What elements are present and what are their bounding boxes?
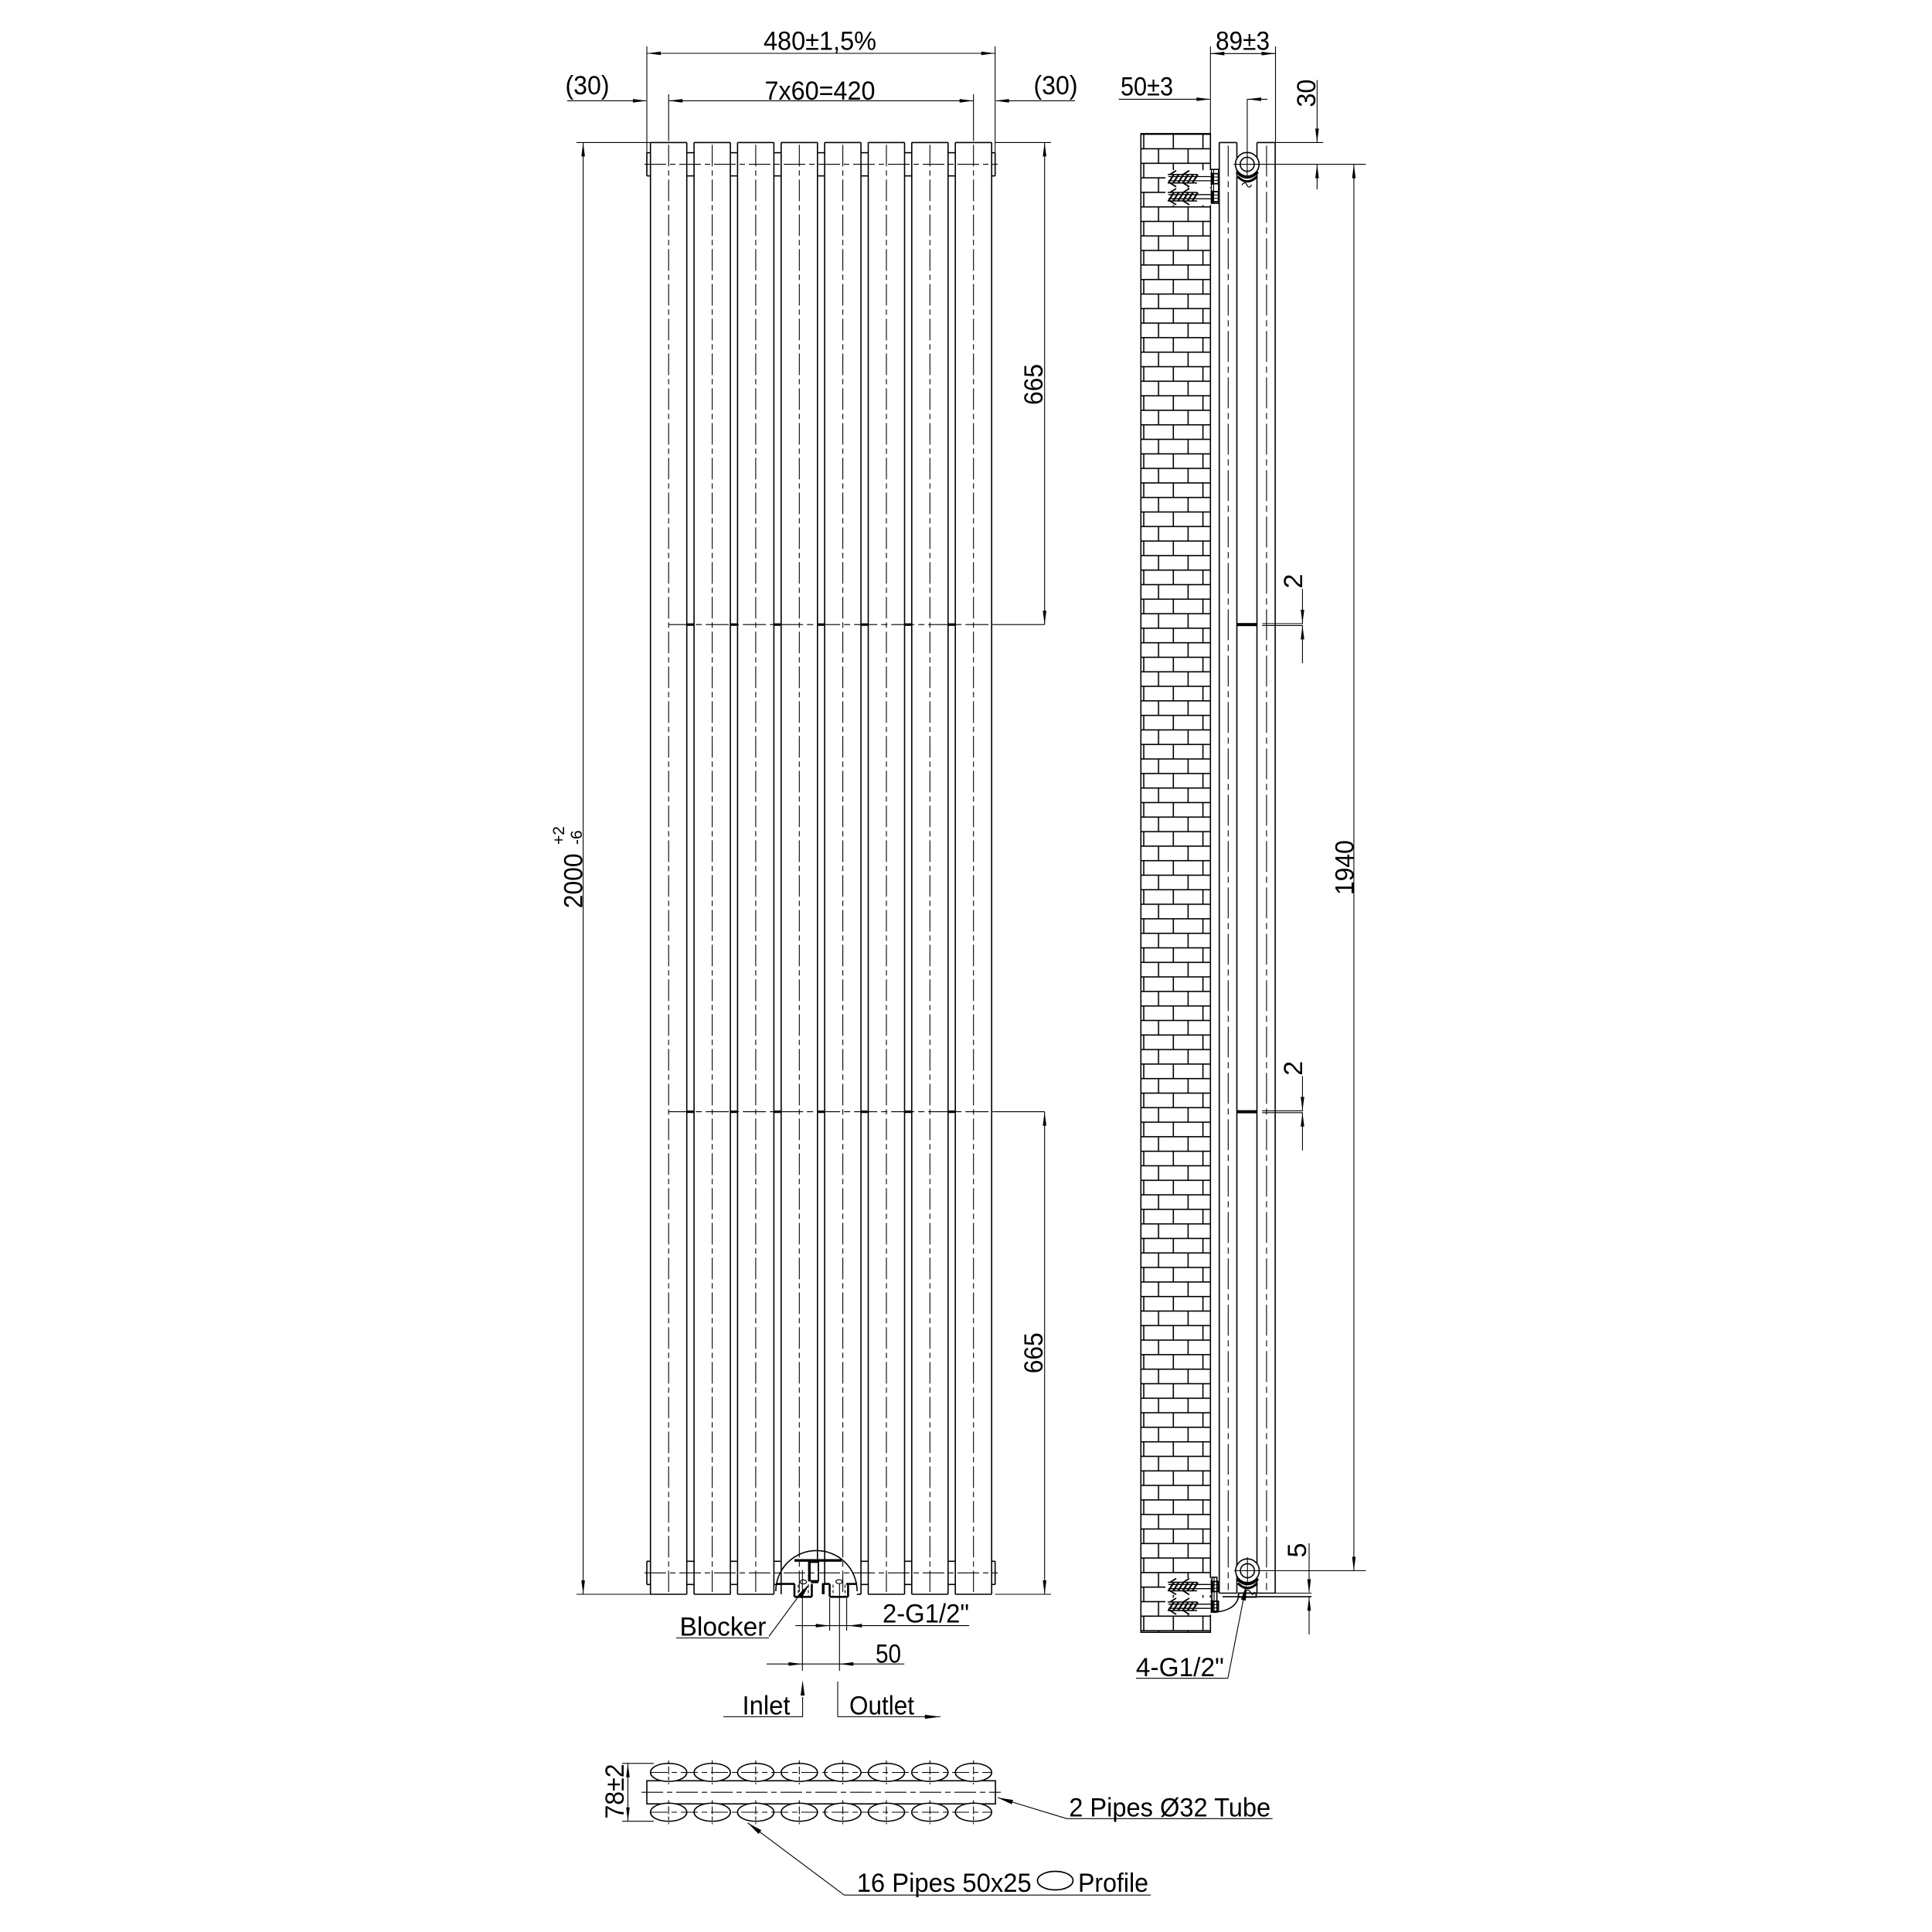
svg-text:2: 2 <box>1279 574 1308 589</box>
svg-text:7x60=420: 7x60=420 <box>765 77 876 106</box>
svg-text:78±2: 78±2 <box>600 1764 630 1819</box>
svg-text:30: 30 <box>1292 80 1321 107</box>
svg-text:50±3: 50±3 <box>1121 73 1173 102</box>
svg-text:(30): (30) <box>1034 71 1078 100</box>
svg-text:Outlet: Outlet <box>849 1691 915 1720</box>
svg-text:Blocker: Blocker <box>680 1613 767 1642</box>
svg-text:+2: +2 <box>550 826 568 845</box>
svg-text:16 Pipes 50x25: 16 Pipes 50x25 <box>857 1869 1032 1898</box>
svg-text:Profile: Profile <box>1078 1869 1148 1898</box>
svg-text:2-G1/2": 2-G1/2" <box>883 1600 969 1629</box>
svg-text:665: 665 <box>1019 364 1049 405</box>
svg-text:Inlet: Inlet <box>743 1691 791 1720</box>
svg-text:50: 50 <box>876 1640 901 1669</box>
svg-text:2000: 2000 <box>560 853 589 908</box>
svg-text:89±3: 89±3 <box>1216 27 1270 56</box>
svg-text:480±1,5%: 480±1,5% <box>764 27 876 56</box>
svg-text:5: 5 <box>1283 1543 1312 1558</box>
svg-text:665: 665 <box>1019 1332 1049 1373</box>
svg-text:2: 2 <box>1279 1061 1308 1076</box>
svg-text:2 Pipes Ø32 Tube: 2 Pipes Ø32 Tube <box>1069 1794 1270 1823</box>
svg-text:(30): (30) <box>566 71 610 100</box>
svg-text:-6: -6 <box>568 830 586 845</box>
svg-text:1940: 1940 <box>1331 840 1360 895</box>
